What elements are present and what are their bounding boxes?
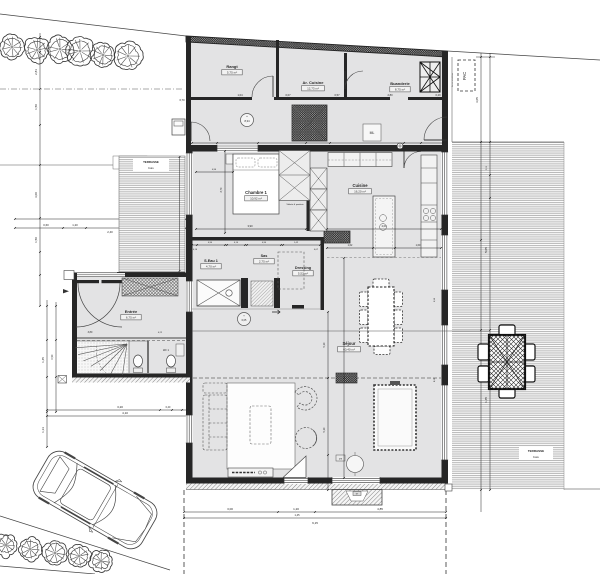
svg-text:4,00: 4,00 <box>381 224 387 228</box>
svg-text:Dressing: Dressing <box>295 266 312 270</box>
svg-text:0,60: 0,60 <box>43 223 49 227</box>
svg-text:cm: cm <box>339 458 342 461</box>
svg-text:Ar. Cuisine: Ar. Cuisine <box>303 80 325 85</box>
svg-text:Entrée: Entrée <box>125 309 138 314</box>
svg-text:1,62: 1,62 <box>348 244 353 247</box>
svg-text:Rangt: Rangt <box>226 64 238 69</box>
svg-text:0,57: 0,57 <box>334 93 340 97</box>
svg-text:3,70: 3,70 <box>220 187 223 192</box>
svg-text:Tablette & penderie: Tablette & penderie <box>286 203 304 206</box>
svg-text:Wc 1: Wc 1 <box>163 348 169 352</box>
svg-text:TERRASSE: TERRASSE <box>528 449 544 453</box>
svg-text:0,05: 0,05 <box>242 319 247 322</box>
svg-text:Séjour: Séjour <box>342 341 355 346</box>
svg-text:Buanderie: Buanderie <box>390 81 410 86</box>
svg-text:1,50: 1,50 <box>34 104 38 110</box>
svg-text:10,92 m²: 10,92 m² <box>250 197 262 201</box>
svg-text:1,20: 1,20 <box>293 507 299 511</box>
svg-text:5,10: 5,10 <box>323 342 326 347</box>
svg-text:S.Eau 1: S.Eau 1 <box>204 259 218 263</box>
svg-text:60,40 m²: 60,40 m² <box>343 348 355 352</box>
svg-text:1,50: 1,50 <box>34 237 38 243</box>
svg-text:Chambre 1: Chambre 1 <box>245 190 267 195</box>
svg-text:4,85: 4,85 <box>377 507 383 511</box>
svg-text:1,04: 1,04 <box>237 93 243 97</box>
svg-text:2,80: 2,80 <box>387 93 393 97</box>
svg-text:8,34: 8,34 <box>244 119 250 123</box>
svg-text:3,00: 3,00 <box>34 192 38 198</box>
svg-text:0,29: 0,29 <box>435 93 441 97</box>
svg-text:0,90: 0,90 <box>51 354 54 359</box>
svg-text:5,52 m²: 5,52 m² <box>298 272 308 276</box>
svg-text:ML: ML <box>370 131 375 135</box>
svg-text:0,07: 0,07 <box>285 93 291 97</box>
svg-text:5,75 m²: 5,75 m² <box>227 71 237 75</box>
svg-text:1,45: 1,45 <box>41 357 45 363</box>
svg-text:1,45: 1,45 <box>484 397 488 403</box>
svg-text:1,20: 1,20 <box>72 223 78 227</box>
svg-text:1,13: 1,13 <box>41 427 45 433</box>
svg-text:9,15: 9,15 <box>312 521 318 525</box>
svg-text:0,40: 0,40 <box>166 406 171 409</box>
svg-text:TERRASSE: TERRASSE <box>143 160 159 164</box>
svg-text:2,81: 2,81 <box>34 69 38 75</box>
svg-text:PAC: PAC <box>462 72 467 80</box>
svg-text:bois: bois <box>533 455 539 459</box>
svg-text:3,05: 3,05 <box>475 97 479 103</box>
svg-text:+: + <box>246 114 248 118</box>
svg-text:Semis et clôture: Semis et clôture <box>451 72 454 87</box>
svg-text:Sas: Sas <box>261 254 268 258</box>
svg-text:12,73 m²: 12,73 m² <box>307 87 319 91</box>
svg-text:3,80: 3,80 <box>88 331 93 334</box>
svg-text:2,75 m²: 2,75 m² <box>259 260 269 264</box>
svg-text:1,45: 1,45 <box>294 513 300 517</box>
svg-text:bois: bois <box>148 166 154 170</box>
svg-text:Cuisine: Cuisine <box>352 183 368 188</box>
svg-text:3,20: 3,20 <box>117 405 123 409</box>
svg-text:16,20 m²: 16,20 m² <box>354 190 366 194</box>
svg-text:5,05: 5,05 <box>484 247 488 253</box>
svg-text:3,90: 3,90 <box>247 224 253 228</box>
svg-text:2,40: 2,40 <box>107 230 113 234</box>
svg-text:3,00: 3,00 <box>227 507 233 511</box>
svg-text:5,10: 5,10 <box>323 427 326 432</box>
svg-text:4,10: 4,10 <box>122 411 128 415</box>
svg-text:8,75 m²: 8,75 m² <box>395 88 405 92</box>
svg-text:6,75 m²: 6,75 m² <box>126 316 136 320</box>
svg-text:6,70: 6,70 <box>179 98 185 102</box>
svg-text:4,70 m²: 4,70 m² <box>206 265 216 269</box>
svg-text:1,60: 1,60 <box>416 244 421 247</box>
